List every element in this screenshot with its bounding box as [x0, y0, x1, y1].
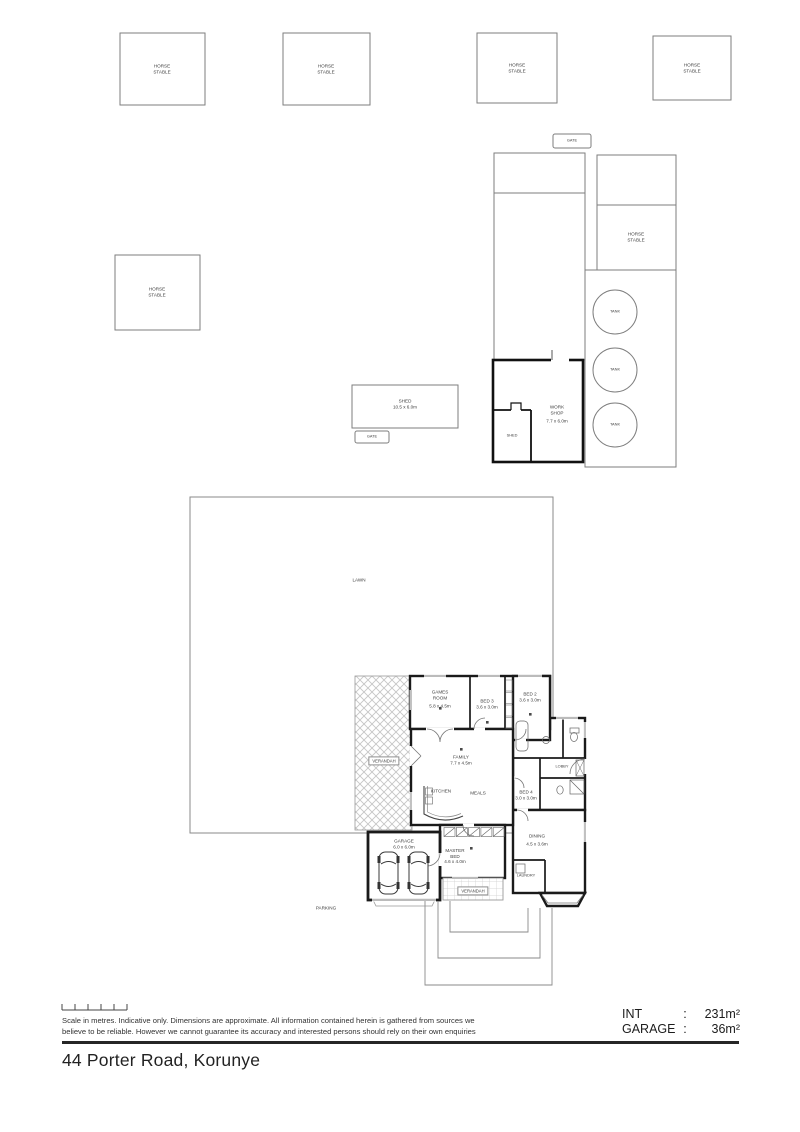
label-kitchen: KITCHEN — [431, 788, 451, 794]
label-horse-stable-4: HORSESTABLE — [683, 63, 700, 74]
label-horse-stable-3: HORSESTABLE — [508, 63, 525, 74]
workshop-outline — [493, 350, 583, 462]
car-icon — [378, 852, 400, 894]
page-address: 44 Porter Road, Korunye — [62, 1050, 260, 1071]
site-plan-art — [0, 0, 800, 1132]
area-garage-row: GARAGE:36m² — [622, 1022, 740, 1037]
label-bed2: BED 23.6 x 3.0m — [519, 692, 540, 703]
label-lawn: LAWN — [352, 577, 365, 583]
label-horse-stable-5: HORSESTABLE — [148, 287, 165, 298]
label-tank-3: TANK — [610, 423, 620, 428]
label-gate-2: GATE — [367, 435, 377, 440]
label-shed: SHED10.5 x 6.0m — [393, 399, 417, 410]
label-workshop: WORKSHOP7.7 x 6.0m — [546, 405, 567, 424]
verandah-label-box: VERANDAH — [368, 756, 399, 765]
area-summary: INT:231m² GARAGE:36m² — [622, 1007, 740, 1037]
label-gate-1: GATE — [567, 139, 577, 144]
label-family: FAMILY7.7 x 4.5m — [450, 755, 471, 766]
label-games-room: GAMESROOM5.8 x 4.5m — [429, 690, 450, 709]
label-bed3: BED 33.6 x 3.0m — [476, 699, 497, 710]
label-bed4: BED 43.0 x 3.0m — [515, 790, 536, 801]
label-laundry: LAUNDRY — [517, 874, 536, 879]
porch-label-box: VERANDAH — [457, 886, 488, 895]
label-dining: DINING4.5 x 3.6m — [526, 833, 547, 847]
label-horse-stable-6: HORSESTABLE — [627, 232, 644, 243]
label-horse-stable-2: HORSESTABLE — [317, 64, 334, 75]
car-icon — [408, 852, 430, 894]
label-workshop-shed: SHED — [507, 434, 518, 439]
garden-paths — [425, 901, 552, 985]
scale-bar — [62, 1004, 127, 1010]
label-garage: GARAGE6.0 x 6.0m — [393, 839, 414, 850]
area-int-row: INT:231m² — [622, 1007, 740, 1022]
disclaimer-text: Scale in metres. Indicative only. Dimens… — [62, 1016, 607, 1037]
verandah-hatch — [355, 676, 412, 830]
divider-rule — [62, 1041, 739, 1044]
label-parking: PARKING — [316, 905, 336, 911]
label-tank-1: TANK — [610, 310, 620, 315]
label-meals: MEALS — [470, 790, 486, 796]
label-tank-2: TANK — [610, 368, 620, 373]
label-horse-stable-1: HORSESTABLE — [153, 64, 170, 75]
label-master-bed: MASTERBED4.6 x 4.0m — [444, 848, 465, 865]
label-lobby: LOBBY — [556, 765, 569, 770]
floorplan-page: HORSESTABLE HORSESTABLE HORSESTABLE HORS… — [0, 0, 800, 1132]
